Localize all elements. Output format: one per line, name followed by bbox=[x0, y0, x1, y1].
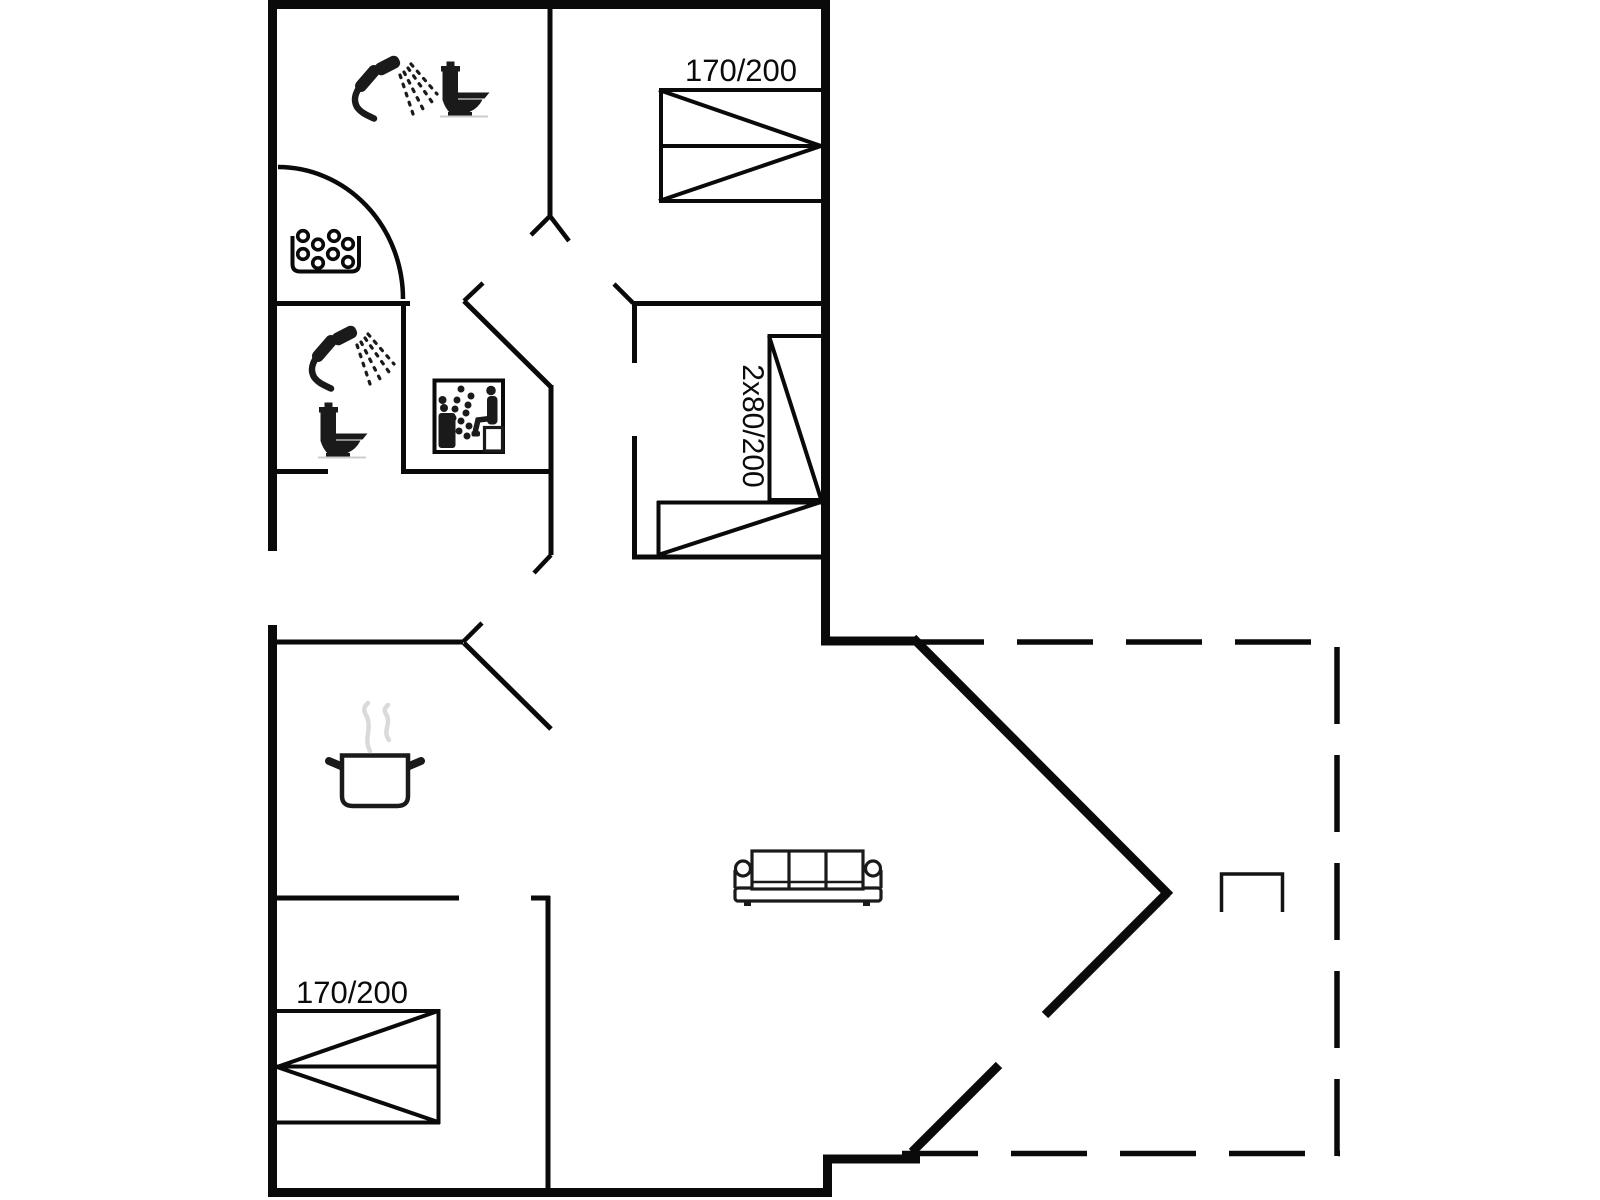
svg-text:170/200: 170/200 bbox=[685, 53, 797, 88]
svg-text:2x80/200: 2x80/200 bbox=[736, 364, 769, 487]
svg-text:170/200: 170/200 bbox=[296, 975, 408, 1010]
